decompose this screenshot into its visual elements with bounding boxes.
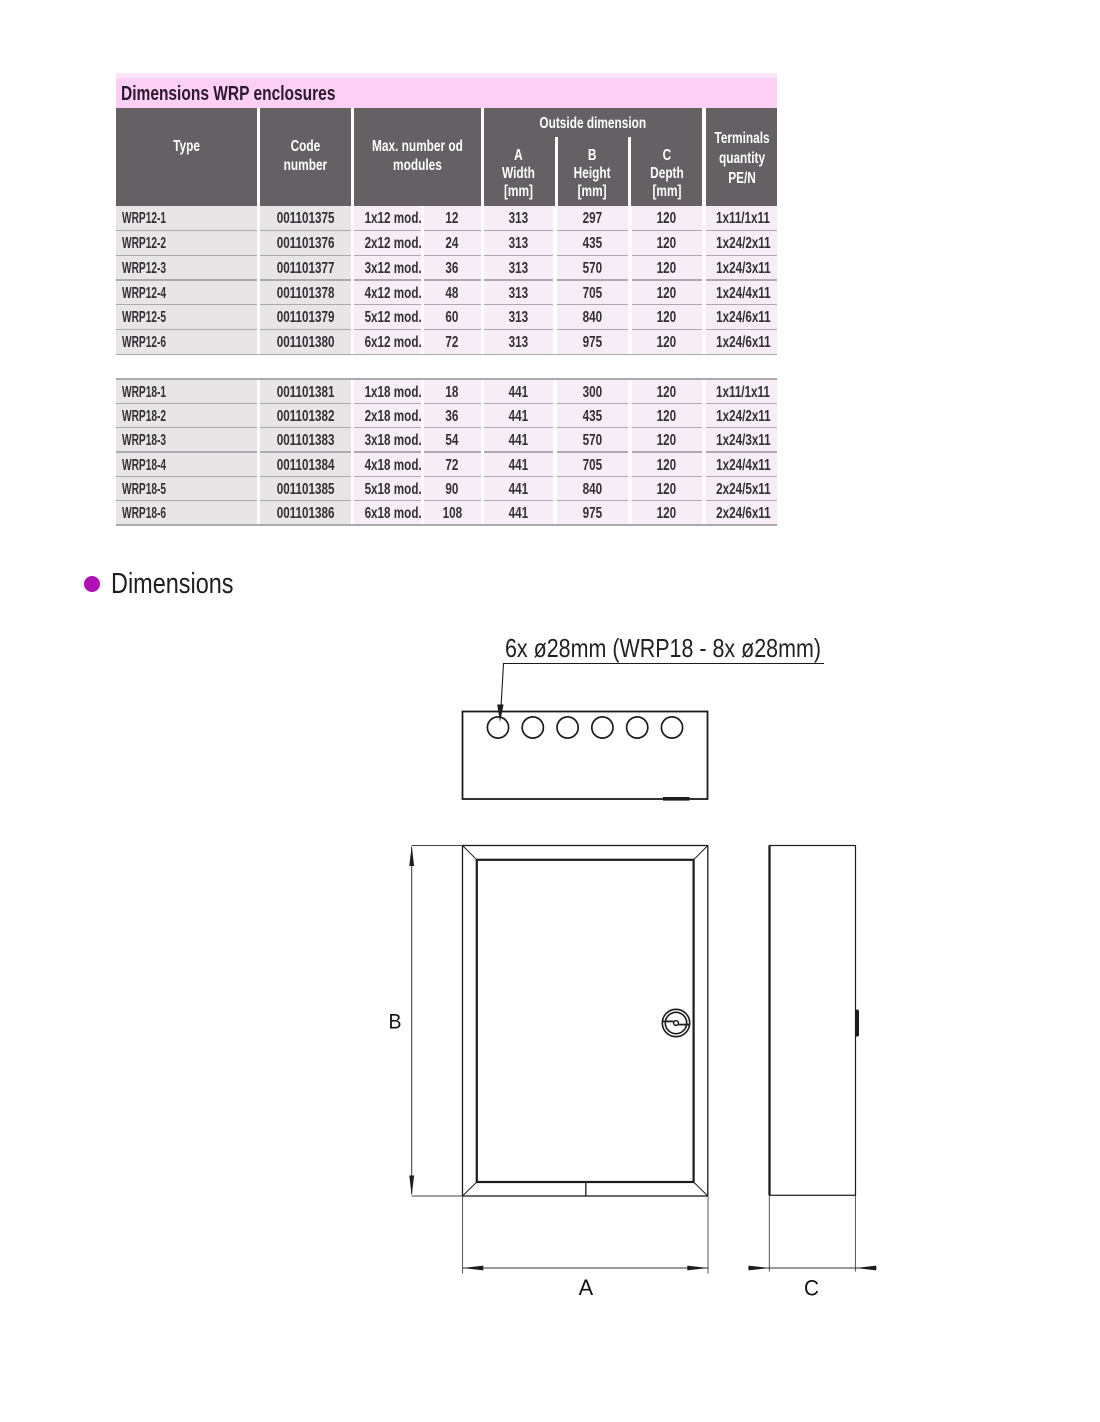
svg-text:6x ø28mm (WRP18 - 8x ø28mm): 6x ø28mm (WRP18 - 8x ø28mm) xyxy=(505,633,821,663)
svg-text:C: C xyxy=(804,1276,819,1301)
svg-text:B: B xyxy=(389,1011,402,1034)
svg-text:A: A xyxy=(579,1275,594,1300)
